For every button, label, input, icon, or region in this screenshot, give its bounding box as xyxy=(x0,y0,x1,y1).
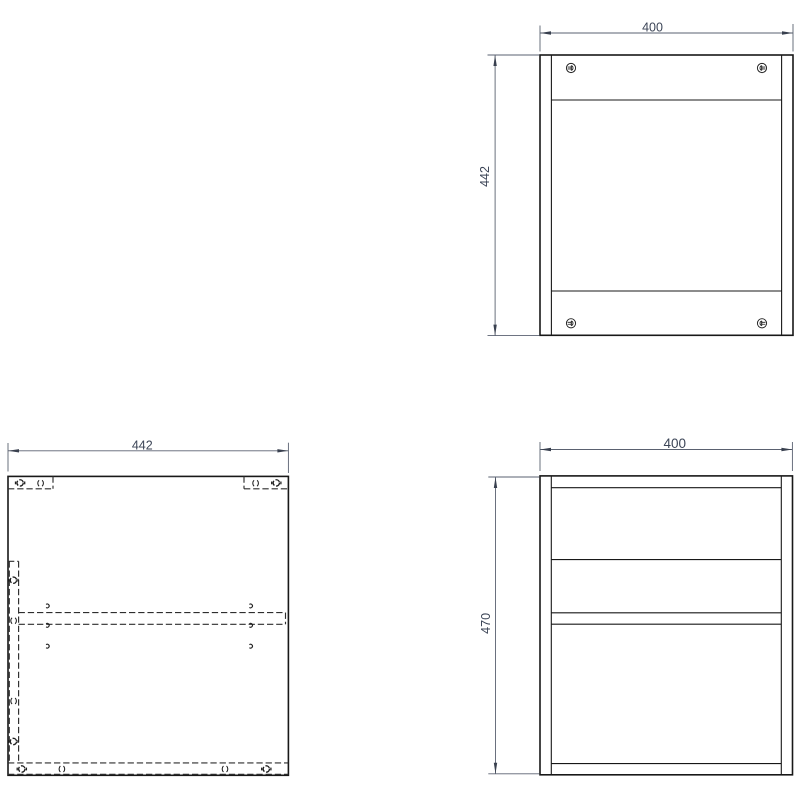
svg-text:442: 442 xyxy=(132,438,153,452)
svg-text:400: 400 xyxy=(664,436,687,451)
svg-text:442: 442 xyxy=(478,166,492,187)
svg-text:400: 400 xyxy=(642,21,663,35)
svg-text:470: 470 xyxy=(479,613,493,634)
